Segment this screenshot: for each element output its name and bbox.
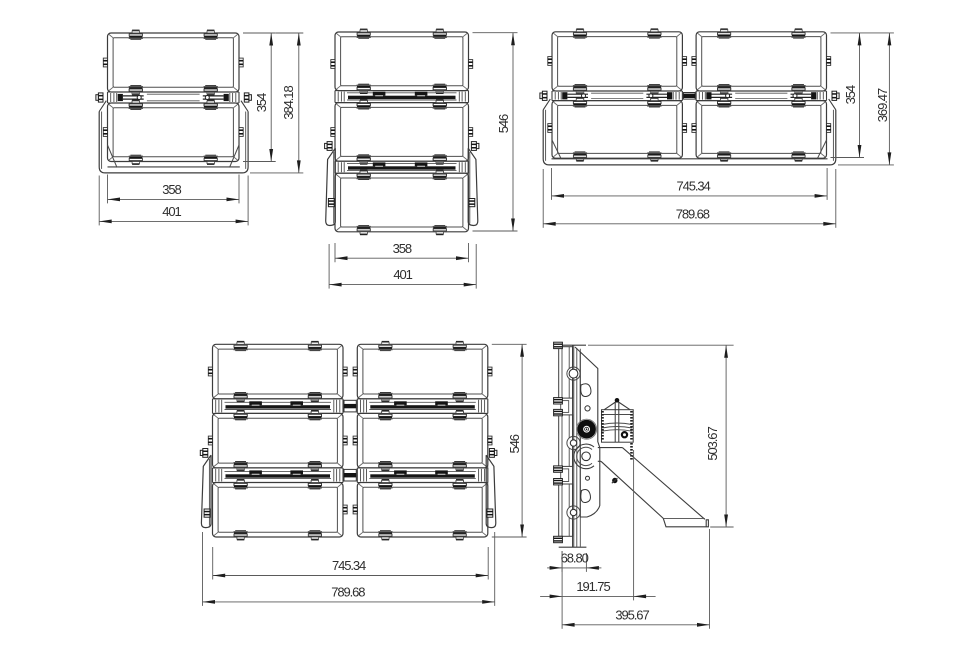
svg-text:503.67: 503.67 [705, 427, 720, 461]
svg-text:395.67: 395.67 [615, 607, 649, 622]
svg-text:789.68: 789.68 [676, 206, 710, 221]
svg-text:401: 401 [393, 267, 412, 282]
svg-text:546: 546 [496, 114, 511, 133]
svg-text:358: 358 [162, 182, 181, 197]
svg-text:401: 401 [162, 204, 181, 219]
svg-text:745.34: 745.34 [677, 179, 711, 194]
svg-text:384.18: 384.18 [281, 86, 296, 120]
svg-text:369.47: 369.47 [875, 88, 890, 122]
svg-text:546: 546 [507, 434, 522, 453]
svg-text:354: 354 [254, 93, 269, 112]
svg-text:191.75: 191.75 [576, 579, 610, 594]
svg-text:745.34: 745.34 [332, 558, 366, 573]
svg-text:358: 358 [393, 241, 412, 256]
svg-text:68.80: 68.80 [561, 551, 589, 566]
svg-text:354: 354 [843, 85, 858, 104]
svg-text:789.68: 789.68 [331, 585, 365, 600]
